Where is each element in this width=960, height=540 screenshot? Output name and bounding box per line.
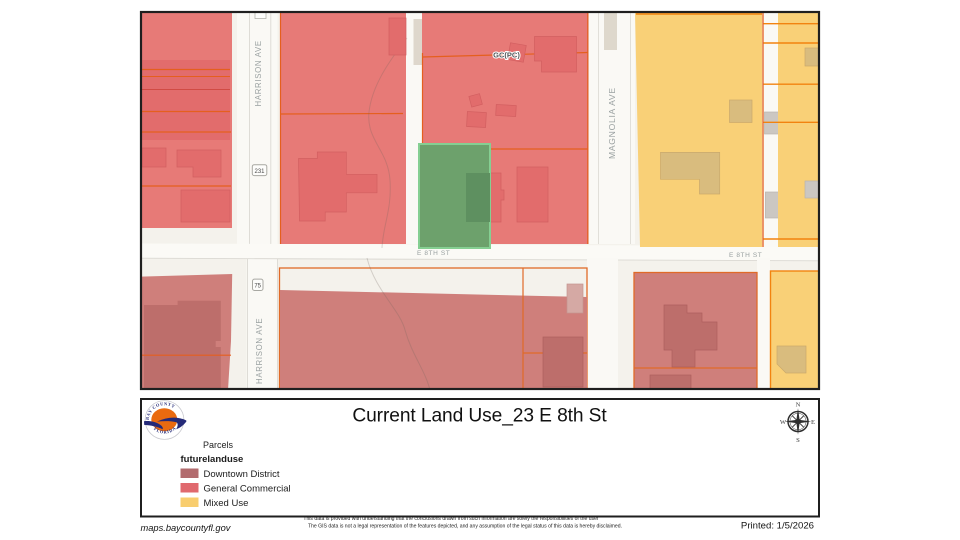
svg-text:The GIS data is not a legal re: The GIS data is not a legal representati… bbox=[308, 523, 622, 529]
svg-text:This data is provided with und: This data is provided with understanding… bbox=[303, 516, 599, 522]
svg-text:Mixed Use: Mixed Use bbox=[204, 498, 249, 509]
svg-text:maps.baycountyfl.gov: maps.baycountyfl.gov bbox=[141, 523, 232, 533]
svg-text:HARRISON AVE: HARRISON AVE bbox=[254, 40, 263, 106]
svg-text:Parcels: Parcels bbox=[203, 440, 234, 450]
svg-text:HARRISON AVE: HARRISON AVE bbox=[255, 318, 264, 384]
svg-text:E 8TH ST: E 8TH ST bbox=[417, 250, 450, 257]
svg-text:75: 75 bbox=[254, 284, 261, 290]
svg-text:S: S bbox=[796, 437, 800, 444]
svg-text:General Commercial: General Commercial bbox=[204, 483, 291, 494]
svg-text:GC(PC): GC(PC) bbox=[493, 51, 520, 60]
svg-text:W: W bbox=[780, 419, 787, 426]
svg-text:E 8TH ST: E 8TH ST bbox=[729, 252, 762, 259]
svg-text:MAGNOLIA AVE: MAGNOLIA AVE bbox=[607, 87, 617, 159]
svg-text:N: N bbox=[796, 402, 801, 409]
svg-text:Printed: 1/5/2026: Printed: 1/5/2026 bbox=[741, 521, 814, 532]
svg-text:futurelanduse: futurelanduse bbox=[181, 454, 244, 465]
svg-text:Current Land Use_23 E 8th St: Current Land Use_23 E 8th St bbox=[352, 406, 607, 427]
svg-text:Downtown District: Downtown District bbox=[204, 469, 280, 480]
svg-text:231: 231 bbox=[254, 169, 265, 175]
svg-text:E: E bbox=[811, 419, 815, 426]
